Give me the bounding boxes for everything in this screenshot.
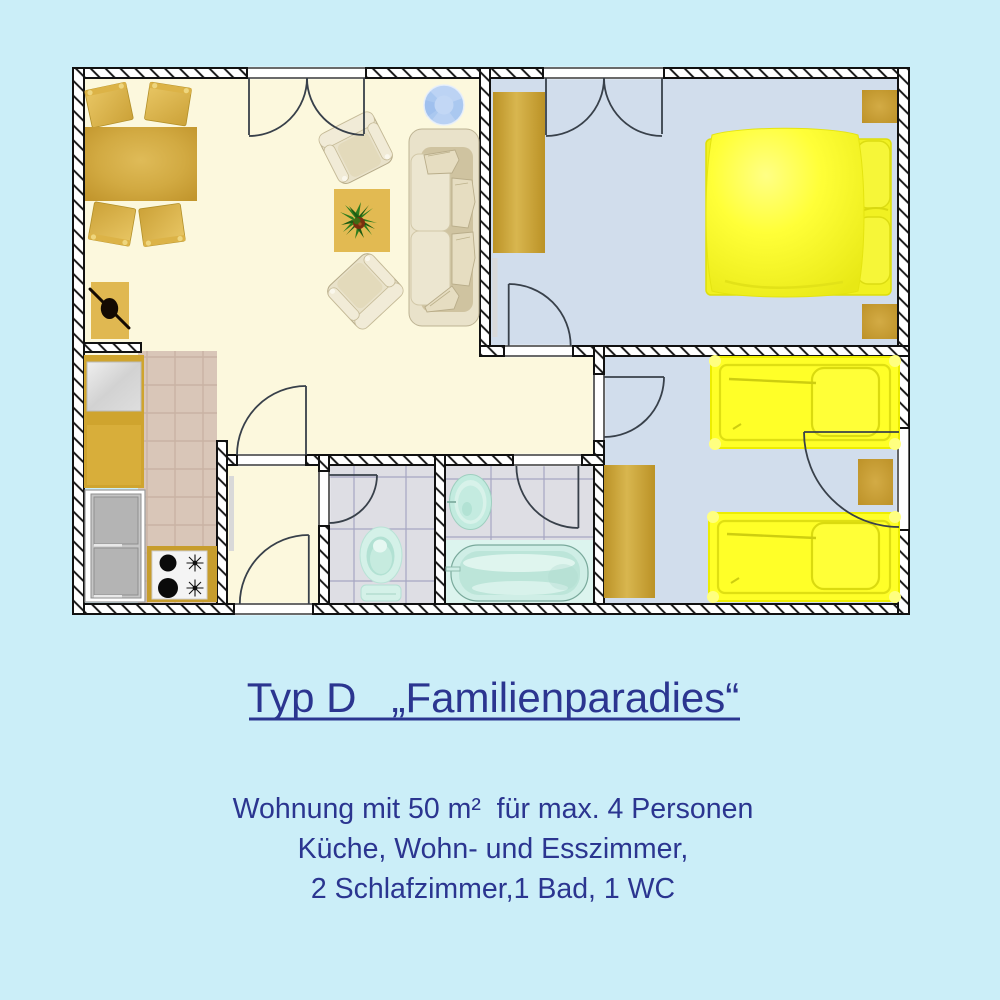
svg-text:Wohnung mit 50 m² für max. 4: Wohnung mit 50 m² für max. 4 Personen xyxy=(233,793,754,825)
svg-text:Küche, Wohn- und Esszimmer,: Küche, Wohn- und Esszimmer, xyxy=(298,833,689,865)
svg-text:Typ D „Familienparadies“: Typ D „Familienparadies“ xyxy=(247,674,740,721)
svg-text:2 Schlafzimmer,1 Bad, 1 WC: 2 Schlafzimmer,1 Bad, 1 WC xyxy=(311,873,675,905)
